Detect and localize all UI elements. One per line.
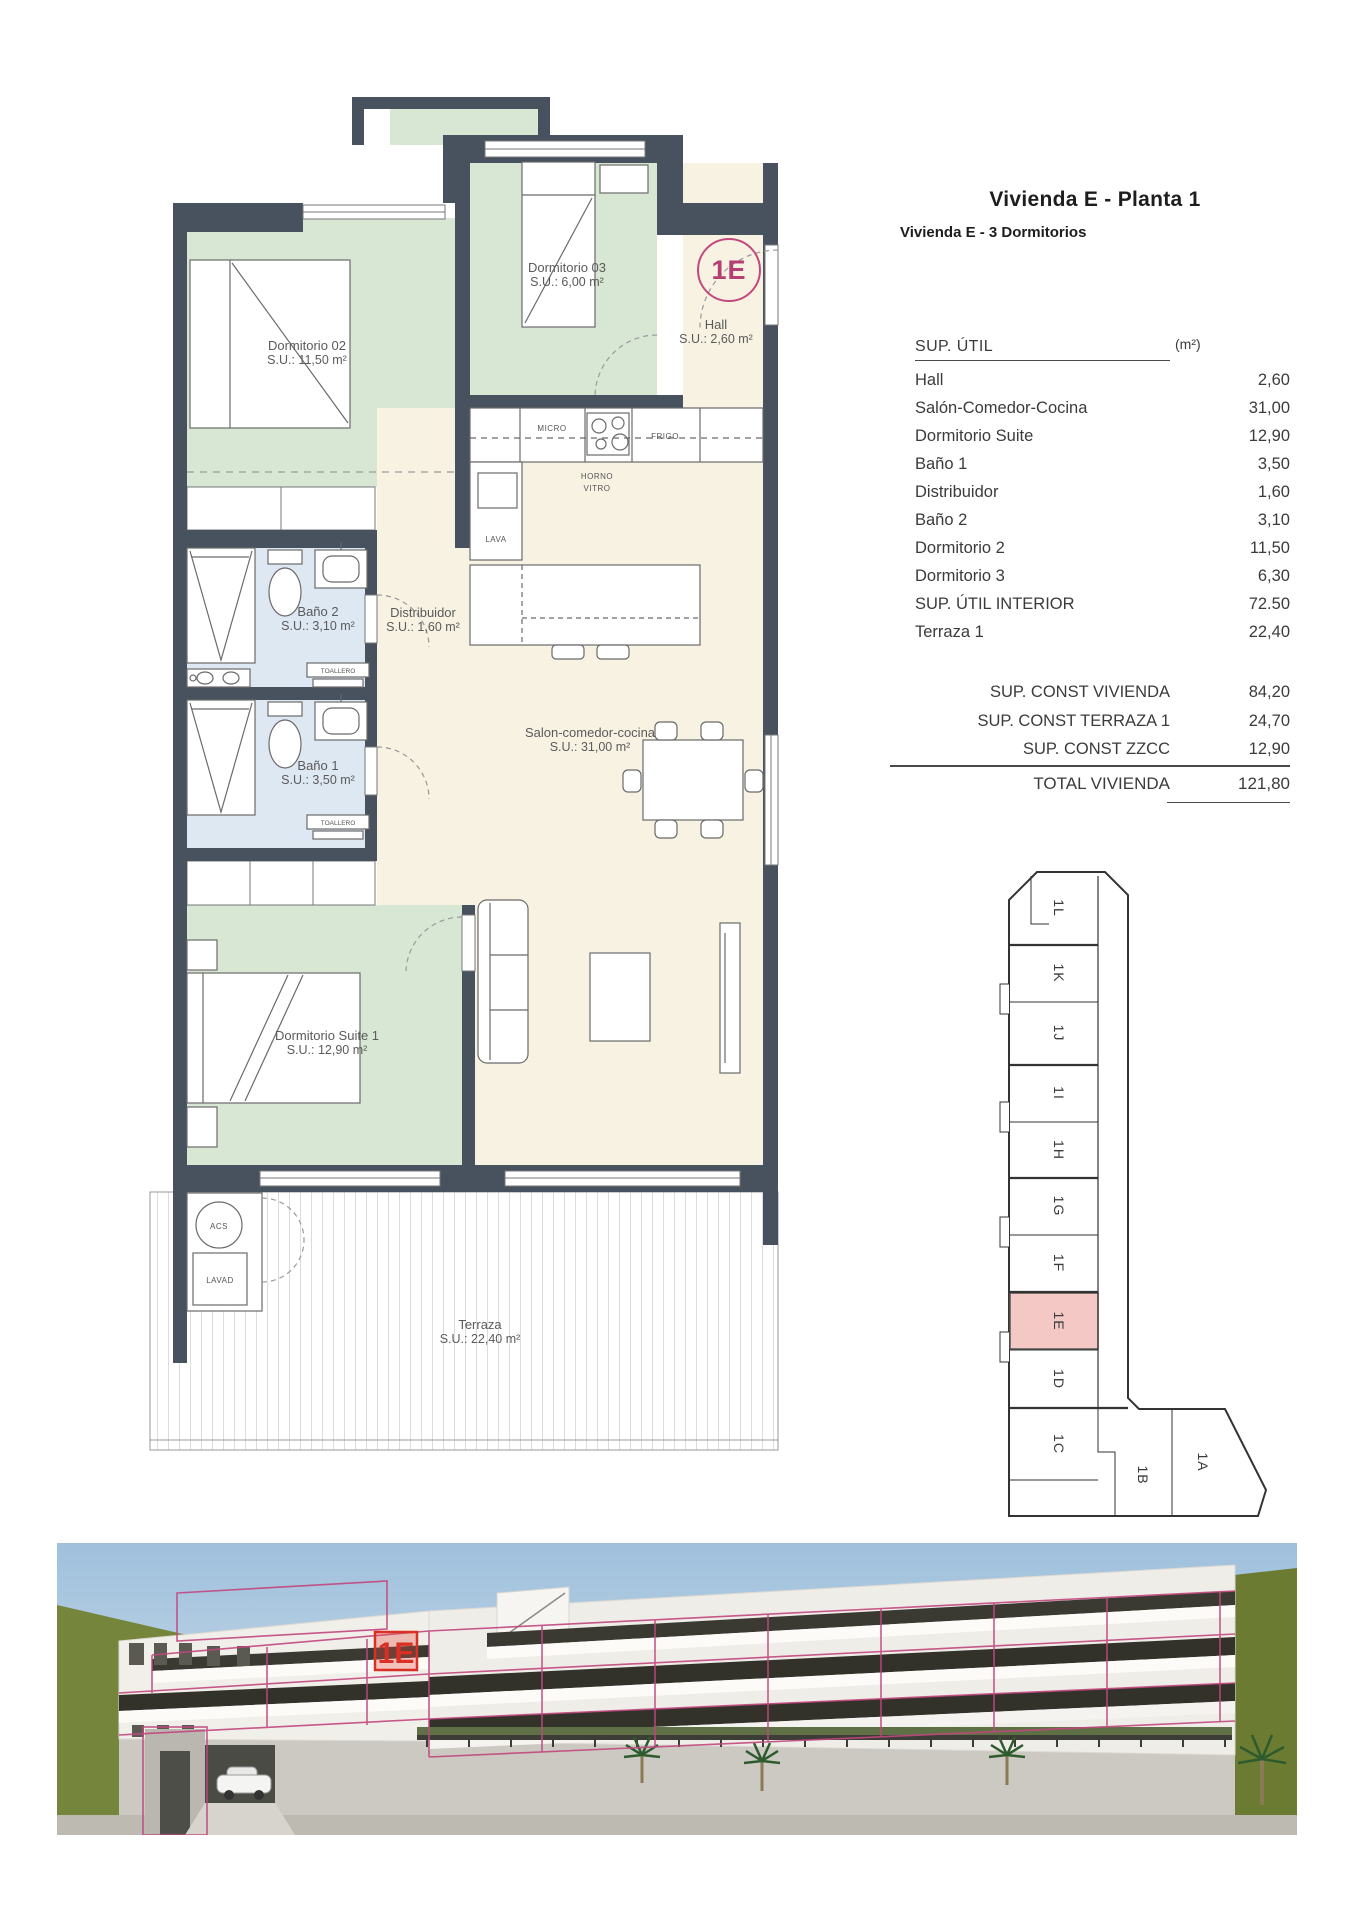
horno-label-1: HORNO bbox=[581, 472, 613, 481]
closet-band bbox=[187, 861, 375, 905]
table-header-rule bbox=[915, 360, 1170, 361]
bed-dorm03 bbox=[522, 162, 595, 327]
room-label-bano2: Baño 2S.U.: 3,10 m² bbox=[281, 604, 355, 634]
coffee-table bbox=[590, 953, 650, 1041]
render-unit-badge-text: 1E bbox=[378, 1637, 415, 1670]
toallero-label: TOALLERO bbox=[321, 668, 356, 675]
stool bbox=[552, 645, 584, 659]
summary-row: SUP. CONST TERRAZA 124,70 bbox=[890, 707, 1290, 735]
keyplan-unit-1f: 1F bbox=[1051, 1254, 1067, 1272]
table-row: Baño 13,50 bbox=[915, 450, 1290, 478]
toallero-label: TOALLERO bbox=[321, 820, 356, 827]
table-row: Salón-Comedor-Cocina31,00 bbox=[915, 394, 1290, 422]
acs-label: ACS bbox=[210, 1222, 228, 1231]
sofa bbox=[478, 900, 528, 1063]
nightstand bbox=[600, 165, 648, 193]
room-label-salon: Salon-comedor-cocinaS.U.: 31,00 m² bbox=[525, 725, 655, 755]
room-label-suite: Dormitorio Suite 1S.U.: 12,90 m² bbox=[275, 1028, 379, 1058]
table-row: Terraza 122,40 bbox=[915, 618, 1290, 646]
render-unit-badge: 1E bbox=[375, 1632, 417, 1670]
building-render: 1E bbox=[57, 1543, 1297, 1835]
total-underline bbox=[1167, 802, 1290, 803]
chair bbox=[623, 770, 641, 792]
summary-row: SUP. CONST ZZCC12,90 bbox=[890, 735, 1290, 763]
keyplan-unit-1l: 1L bbox=[1051, 899, 1067, 917]
chair bbox=[745, 770, 763, 792]
summary-row: SUP. CONST VIVIENDA84,20 bbox=[890, 678, 1290, 706]
page-subtitle: Vivienda E - 3 Dormitorios bbox=[900, 224, 1086, 241]
toilet1 bbox=[268, 702, 302, 716]
keyplan-unit-1j: 1J bbox=[1051, 1025, 1067, 1042]
entrance-door bbox=[160, 1751, 190, 1835]
horno-label-2: VITRO bbox=[584, 484, 611, 493]
room-label-bano1: Baño 1S.U.: 3,50 m² bbox=[281, 758, 355, 788]
chair bbox=[701, 722, 723, 740]
table-row: Dormitorio Suite12,90 bbox=[915, 422, 1290, 450]
keyplan-unit-1c: 1C bbox=[1051, 1434, 1067, 1454]
page-title: Vivienda E - Planta 1 bbox=[890, 188, 1300, 212]
keyplan-unit-1g: 1G bbox=[1051, 1196, 1067, 1217]
room-label-distribuidor: DistribuidorS.U.: 1,60 m² bbox=[386, 605, 460, 635]
keyplan-unit-1i: 1I bbox=[1051, 1086, 1067, 1100]
chair bbox=[655, 722, 677, 740]
keyplan-unit-1d: 1D bbox=[1051, 1369, 1067, 1389]
table-header-unit: (m²) bbox=[1175, 336, 1201, 352]
keyplan-unit-1a: 1A bbox=[1195, 1452, 1211, 1471]
floorplan-drawing: MICRO FRIGO HORNO VITRO LAVA TOALLERO TO… bbox=[135, 95, 785, 1465]
unit-badge-circle: 1E bbox=[697, 238, 761, 302]
keyplan-outline bbox=[1000, 872, 1266, 1516]
frigo-label: FRIGO bbox=[651, 432, 679, 441]
plan-sheet: MICRO FRIGO HORNO VITRO LAVA TOALLERO TO… bbox=[0, 0, 1356, 1920]
nightstand bbox=[187, 1107, 217, 1147]
room-label-dormitorio03: Dormitorio 03S.U.: 6,00 m² bbox=[528, 260, 606, 290]
toilet2 bbox=[268, 550, 302, 564]
sink bbox=[478, 473, 517, 508]
render-scene: 1E bbox=[57, 1543, 1297, 1835]
micro-label: MICRO bbox=[537, 424, 566, 433]
table-header-label: SUP. ÚTIL bbox=[915, 338, 993, 356]
building-keyplan: 1L 1K 1J 1I 1H 1G 1F 1E 1D 1C 1B 1A bbox=[985, 850, 1275, 1525]
room-label-hall: HallS.U.: 2,60 m² bbox=[679, 317, 753, 347]
floorplan: MICRO FRIGO HORNO VITRO LAVA TOALLERO TO… bbox=[135, 95, 785, 1465]
unit-badge-text: 1E bbox=[711, 255, 746, 286]
chair bbox=[701, 820, 723, 838]
total-row: TOTAL VIVIENDA121,80 bbox=[890, 770, 1290, 798]
lava-label: LAVA bbox=[485, 535, 506, 544]
chair bbox=[655, 820, 677, 838]
table-row: Dormitorio 211,50 bbox=[915, 534, 1290, 562]
keyplan-unit-1e: 1E bbox=[1051, 1311, 1067, 1330]
nightstand bbox=[187, 940, 217, 970]
table-row: Hall2,60 bbox=[915, 366, 1290, 394]
room-label-terraza: TerrazaS.U.: 22,40 m² bbox=[440, 1317, 521, 1347]
table-row: SUP. ÚTIL INTERIOR72.50 bbox=[915, 590, 1290, 618]
tv-unit bbox=[720, 923, 740, 1073]
table-row: Distribuidor1,60 bbox=[915, 478, 1290, 506]
table-row: Baño 23,10 bbox=[915, 506, 1290, 534]
keyplan-unit-1h: 1H bbox=[1051, 1140, 1067, 1160]
keyplan-unit-1k: 1K bbox=[1051, 963, 1067, 982]
shower1 bbox=[187, 700, 255, 815]
stool bbox=[597, 645, 629, 659]
shower2 bbox=[187, 548, 255, 663]
island bbox=[470, 565, 700, 645]
keyplan-unit-1b: 1B bbox=[1135, 1465, 1151, 1484]
lavad-label: LAVAD bbox=[206, 1276, 234, 1285]
total-rule bbox=[890, 765, 1290, 767]
table-row: Dormitorio 36,30 bbox=[915, 562, 1290, 590]
room-label-dormitorio02: Dormitorio 02S.U.: 11,50 m² bbox=[267, 338, 347, 368]
dining-table bbox=[643, 740, 743, 820]
